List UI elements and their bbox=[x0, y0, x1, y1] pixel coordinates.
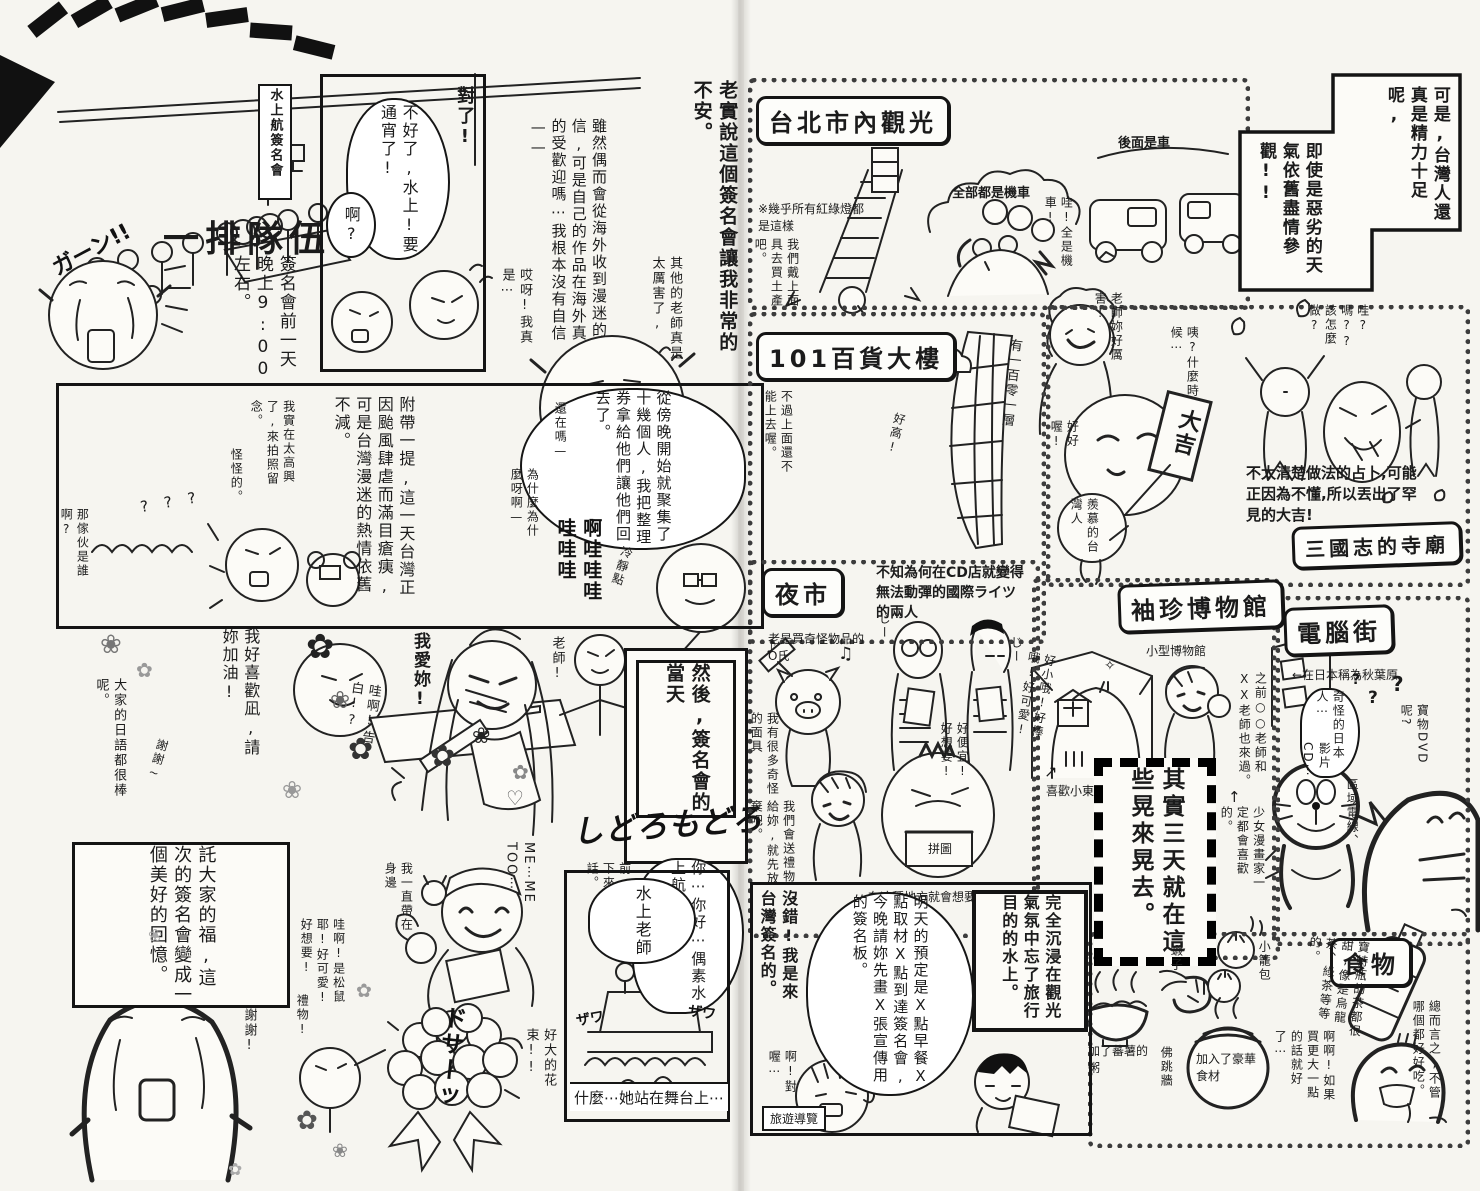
masks-label: 我有很多奇怪的面具 bbox=[748, 712, 780, 804]
flower-icon: ✿ bbox=[306, 630, 335, 664]
flower-icon: ✿ bbox=[228, 1162, 242, 1179]
fan-metoo: ME⋯ME TOO⋯ bbox=[502, 842, 537, 938]
stage-caption: 什麼⋯她站在舞台上⋯ bbox=[570, 1082, 728, 1111]
typhoon-caption: 附帶一提,這一天台灣正因颱風肆虐而滿目瘡痍,可是台灣漫迷的熱情依舊不減。 bbox=[330, 396, 416, 606]
manga-spread: 水上航簽名會 一排隊伍 簽名會前一天晚上9:00左右。 ガーン!! 對了! 不好… bbox=[0, 0, 1480, 1191]
cd-label: 影片CD⋯ bbox=[1300, 742, 1332, 798]
dvd-label: 寶物DVD呢? bbox=[1398, 704, 1430, 782]
panel-day-caption: 然後,簽名會的當天 bbox=[636, 660, 736, 818]
food-verdict: 總而言之,不管哪個都好好吃。 bbox=[1410, 1000, 1442, 1112]
typhoon-who: 那傢伙是誰啊? bbox=[58, 508, 90, 594]
energy-line1: 可是,台灣人還真是精力十足呢, bbox=[1382, 86, 1451, 224]
flower-icon: ✿ bbox=[512, 762, 529, 782]
flower-icon: ❀ bbox=[330, 688, 350, 712]
queue-caption: 簽名會前一天晚上9:00左右。 bbox=[228, 255, 297, 385]
city-tour-title: 台北市內觀光 bbox=[756, 96, 950, 145]
sfx-stare-2: じー bbox=[1008, 636, 1024, 676]
fan-praise: 大家的日語都很棒呢。 bbox=[92, 678, 127, 798]
sfx-stare-1: じー bbox=[876, 612, 892, 652]
temple-title: 三國志的寺廟 bbox=[1291, 521, 1462, 570]
allnighter-exclaim: 對了! bbox=[452, 86, 476, 156]
pot-note: 加入了豪華食材 bbox=[1196, 1050, 1262, 1084]
city-wow: 哇!全是機車! bbox=[1042, 196, 1074, 282]
flower-icon: ❀ bbox=[100, 632, 122, 658]
tower101-when: 咦?什麼時候⋯ bbox=[1168, 326, 1200, 402]
museum-subtitle: 小型博物館 bbox=[1146, 642, 1206, 659]
monologue-sigh: 哎呀!我真是⋯ bbox=[498, 268, 533, 364]
purpose-declare: 沒錯!我是來台灣簽名的。 bbox=[756, 890, 799, 1006]
flower-icon: ❀ bbox=[332, 1142, 348, 1161]
allnighter-reply-bubble: 啊? bbox=[326, 192, 376, 258]
porridge-label: 加了蕃薯的粥 bbox=[1088, 1042, 1158, 1076]
monologue-worry: 雖然偶而會從海外收到漫迷的信,可是自己的作品在海外真的受歡迎嗎⋯我根本沒有自信—… bbox=[528, 118, 609, 358]
tower101-praise: 老師妳好厲害! bbox=[1092, 292, 1124, 372]
typhoon-why: 為什麼為什麼呀啊— bbox=[508, 468, 540, 546]
flower-icon: ✿ bbox=[136, 660, 153, 680]
night-market-title: 夜市 bbox=[762, 568, 844, 617]
flower-icon: ✿ bbox=[356, 982, 372, 1001]
typhoon-photo: 我實在太高興了,來拍照留念。 bbox=[248, 400, 297, 498]
fan-keepsake: 我一直帶在身邊 bbox=[382, 862, 414, 934]
sfx-wail: 啊哇哇哇哇哇哇 bbox=[552, 518, 603, 622]
guidebook-label: 旅遊導覽 bbox=[762, 1106, 826, 1131]
tower101-title: 101百貨大樓 bbox=[756, 332, 956, 381]
energy-line2: 即使是惡劣的天氣依舊盡情參觀!! bbox=[1254, 142, 1323, 282]
food-bigger: 啊啊!如果買更大一點的話就好了⋯ bbox=[1272, 1030, 1337, 1110]
memory-crying-blob bbox=[72, 1000, 250, 1180]
purpose-oh-right: 啊!對喔⋯ bbox=[766, 1050, 798, 1098]
fortune-caption: 不太清楚做法的占卜,可能正因為不懂,所以丟出了罕見的大吉! bbox=[1246, 462, 1428, 525]
schedule-bubble: 明天的預定是X點早餐X點取材X點到達簽名會,今晚請妳先畫X張宣傳用的簽名板。 bbox=[806, 892, 974, 1096]
tower101-closed: 不過上面還不能上去喔。 bbox=[762, 390, 794, 482]
give-up-label: 我們會送禮物給妳,就先放棄吧。 bbox=[748, 800, 797, 892]
bargain-label: 好便宜!好想要! bbox=[938, 722, 970, 788]
cd-caption: 不知為何在CD店就變得無法動彈的國際ライツ的兩人 bbox=[876, 562, 1026, 622]
memory-box: 託大家的福,這次的簽名會變成一個美好的回憶。 bbox=[72, 842, 290, 1008]
fan-love: 我愛妳! bbox=[408, 632, 431, 724]
fan-squirrel: 哇啊!是松鼠耶!好可愛!好想要! bbox=[298, 918, 347, 1006]
pc-street-title: 電腦街 bbox=[1283, 604, 1395, 657]
cars-label: 後面是車 bbox=[1118, 132, 1170, 151]
fortune-how: 哇?嗎??該怎麼做? bbox=[1306, 304, 1371, 360]
fan-bouquet: 好大的花束!! bbox=[522, 1028, 557, 1124]
shrimp-label: 蝦子 bbox=[1168, 944, 1184, 994]
typhoon-still-there: 還在嗎— bbox=[552, 402, 568, 474]
flower-icon: ❀ bbox=[148, 928, 162, 945]
bun-label: 小籠包 bbox=[1256, 940, 1272, 1002]
museum-title: 袖珍博物館 bbox=[1117, 579, 1285, 634]
sfx-zawa-right: ザワ bbox=[687, 1000, 718, 1024]
museum-visitors: 之前○○老師和XX老師也來過。 bbox=[1236, 672, 1268, 790]
arrow-up-icon: ↑ bbox=[1228, 788, 1241, 806]
flower-icon: ✿ bbox=[430, 742, 455, 772]
fan-sensei: 老師! bbox=[548, 636, 566, 696]
fan-cheer: 我好喜歡凪,請妳加油! bbox=[218, 628, 261, 758]
tower101-envy: 羨慕的台灣人 bbox=[1068, 498, 1100, 560]
flower-icon: ✿ bbox=[348, 735, 373, 765]
odd-goods-label: 老是買奇怪物品的O氏 bbox=[768, 630, 872, 664]
monologue-intro: 老實說這個簽名會讓我非常的不安。 bbox=[688, 80, 739, 360]
question-icon: ? bbox=[1368, 688, 1378, 708]
music-note-icon: ♪ bbox=[766, 638, 777, 658]
region-code-label: 區域電線、 bbox=[1344, 778, 1360, 850]
purpose-caption-box: 完全沉浸在觀光氣氛中忘了旅行目的的水上。 bbox=[972, 890, 1088, 1032]
tower101-nice: 好好喔! bbox=[1048, 420, 1080, 476]
city-tour-note: ※幾乎所有紅綠燈都是這樣 bbox=[758, 200, 868, 234]
wander-box: 其實三天就在這些晃來晃去。 bbox=[1094, 758, 1216, 966]
sign-board: 水上航簽名會 bbox=[258, 84, 292, 200]
flower-icon: ✿ bbox=[296, 1108, 318, 1134]
akihabara-note: ←在日本稱為秋葉原 bbox=[1292, 666, 1398, 683]
question-icon: ? bbox=[1352, 672, 1360, 688]
pot-label: 佛跳牆 bbox=[1158, 1046, 1174, 1110]
tea-note: 寶特瓶的茶都很甜,像是烏龍茶、綠茶等等的。 bbox=[1297, 935, 1372, 1043]
museum-shoujo: 少女漫畫家一定都會喜歡的。 bbox=[1218, 806, 1267, 896]
arrow-up-icon: ↗ bbox=[1044, 762, 1057, 781]
puzzle-label: 拼圖 bbox=[916, 840, 964, 857]
city-souvenir: 我們戴上面具去買土產吧。 bbox=[752, 238, 801, 316]
sparkle-icon: ✧ bbox=[1104, 658, 1116, 674]
fan-thanks2: 謝謝! bbox=[240, 1008, 258, 1066]
question-icon: ? bbox=[1392, 672, 1404, 696]
scooters-label: 全部都是機車 bbox=[952, 182, 1030, 201]
heart-icon: ♡ bbox=[506, 788, 524, 808]
typhoon-strange: 怪怪的。 bbox=[228, 448, 244, 508]
flower-icon: ❀ bbox=[282, 778, 302, 802]
flower-icon: ❀ bbox=[472, 726, 490, 748]
monologue-others: 其他的老師真是太厲害了, bbox=[648, 256, 683, 366]
music-note-icon: ♫ bbox=[838, 644, 853, 664]
